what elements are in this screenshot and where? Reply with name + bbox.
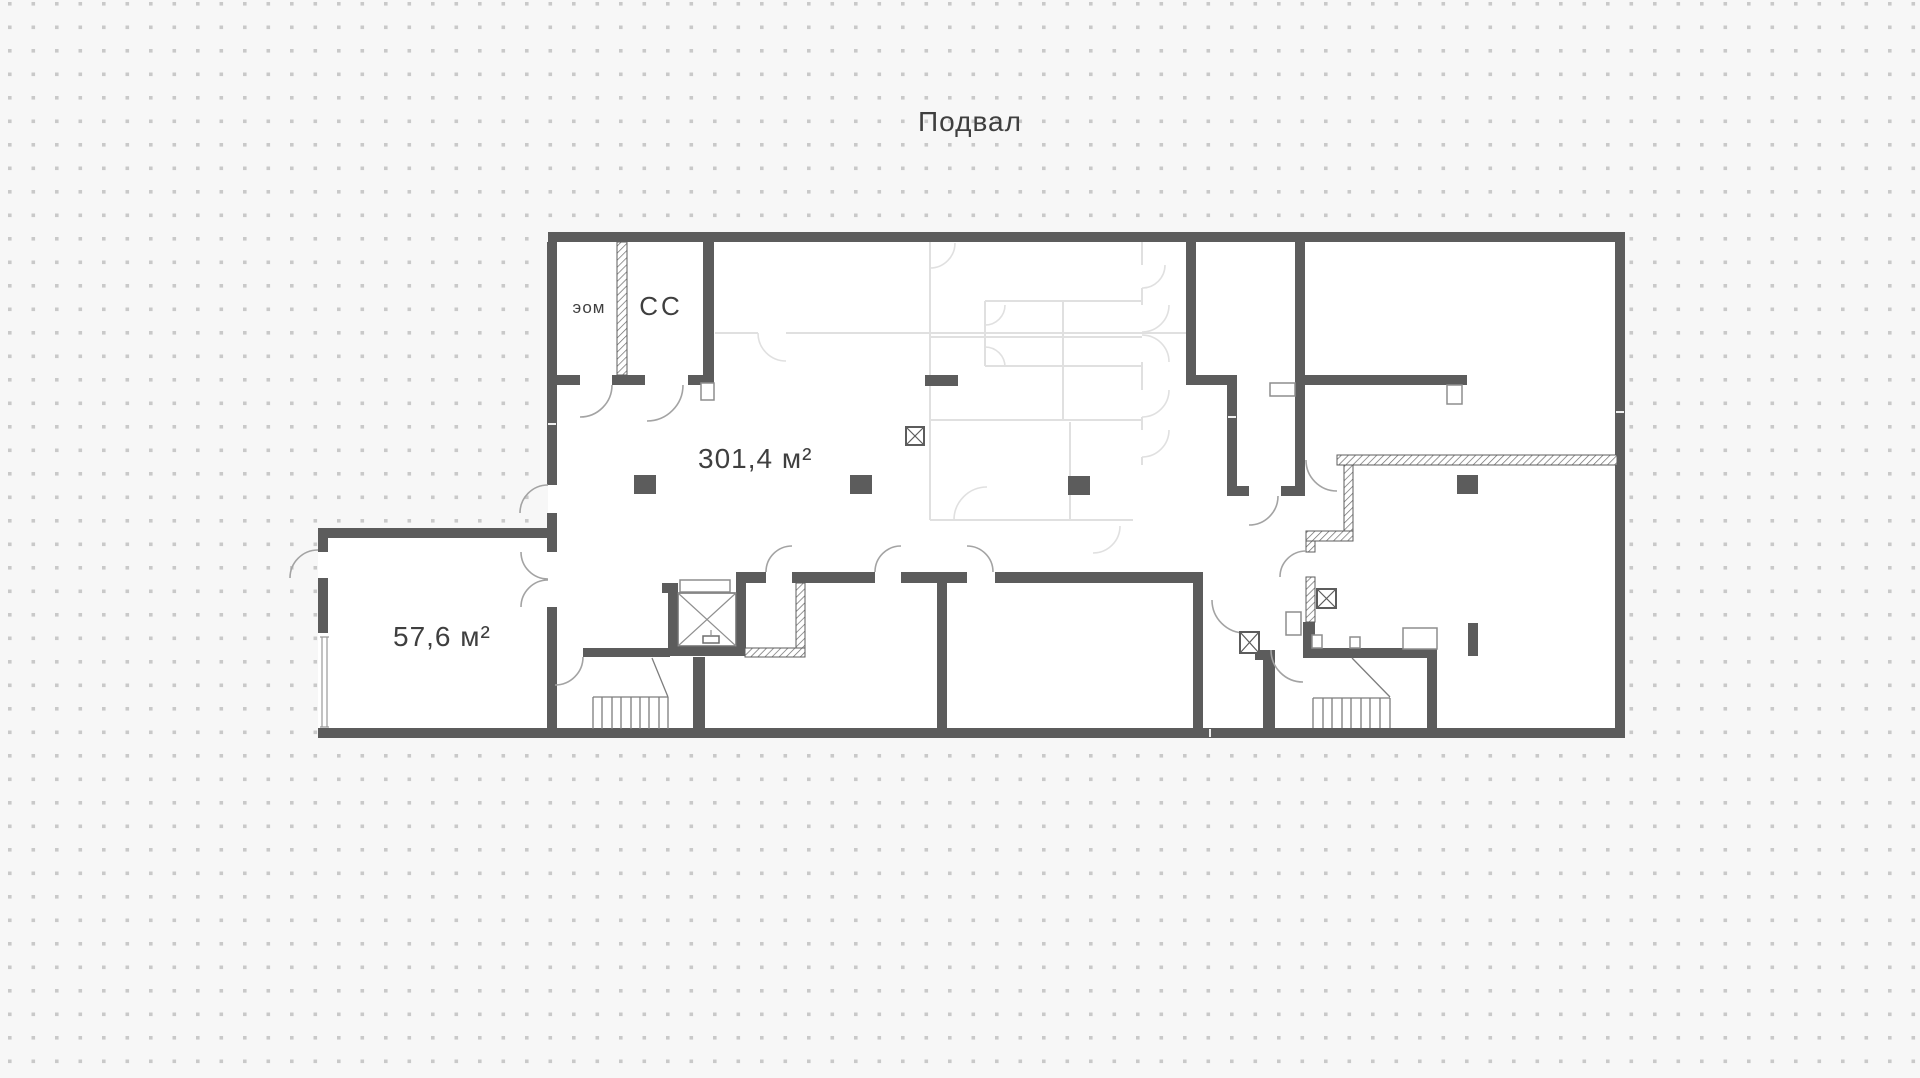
- room-label-eom: эом: [572, 298, 605, 317]
- elevator: [678, 580, 736, 646]
- floorplan-page: Подвал эом СС 301,4 м² 57,6 м²: [0, 0, 1920, 1078]
- sink-fixture: [1350, 637, 1360, 648]
- vent-shaft: [1317, 589, 1336, 608]
- elevator-call-panel: [703, 636, 719, 643]
- shower-fixture: [1403, 628, 1437, 649]
- vent-shaft: [906, 427, 924, 445]
- elevator-door: [680, 580, 730, 592]
- vent-shaft: [1240, 632, 1259, 653]
- floorplan-svg: Подвал эом СС 301,4 м² 57,6 м²: [0, 0, 1920, 1078]
- column: [850, 475, 872, 494]
- column: [1068, 476, 1090, 495]
- plan-title: Подвал: [918, 106, 1022, 137]
- column: [634, 475, 656, 494]
- wc-fixture: [1286, 612, 1301, 635]
- room-label-cc: СС: [639, 291, 683, 321]
- column: [1457, 475, 1478, 494]
- pilaster: [1468, 623, 1478, 656]
- area-label-main: 301,4 м²: [698, 443, 812, 474]
- sink-fixture: [1312, 635, 1322, 648]
- area-label-annex: 57,6 м²: [393, 621, 491, 652]
